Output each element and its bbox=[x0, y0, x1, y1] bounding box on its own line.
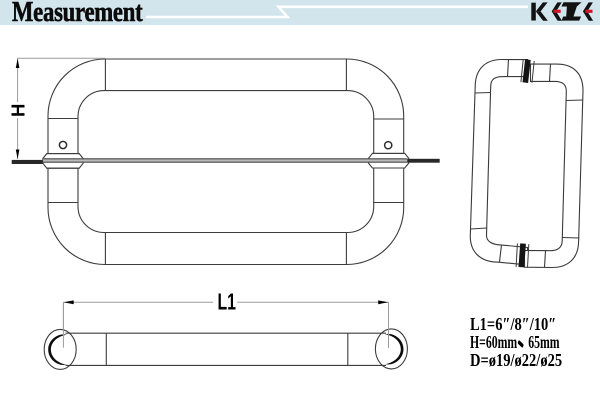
svg-text:L1: L1 bbox=[218, 289, 237, 315]
svg-text:H: H bbox=[8, 104, 29, 117]
